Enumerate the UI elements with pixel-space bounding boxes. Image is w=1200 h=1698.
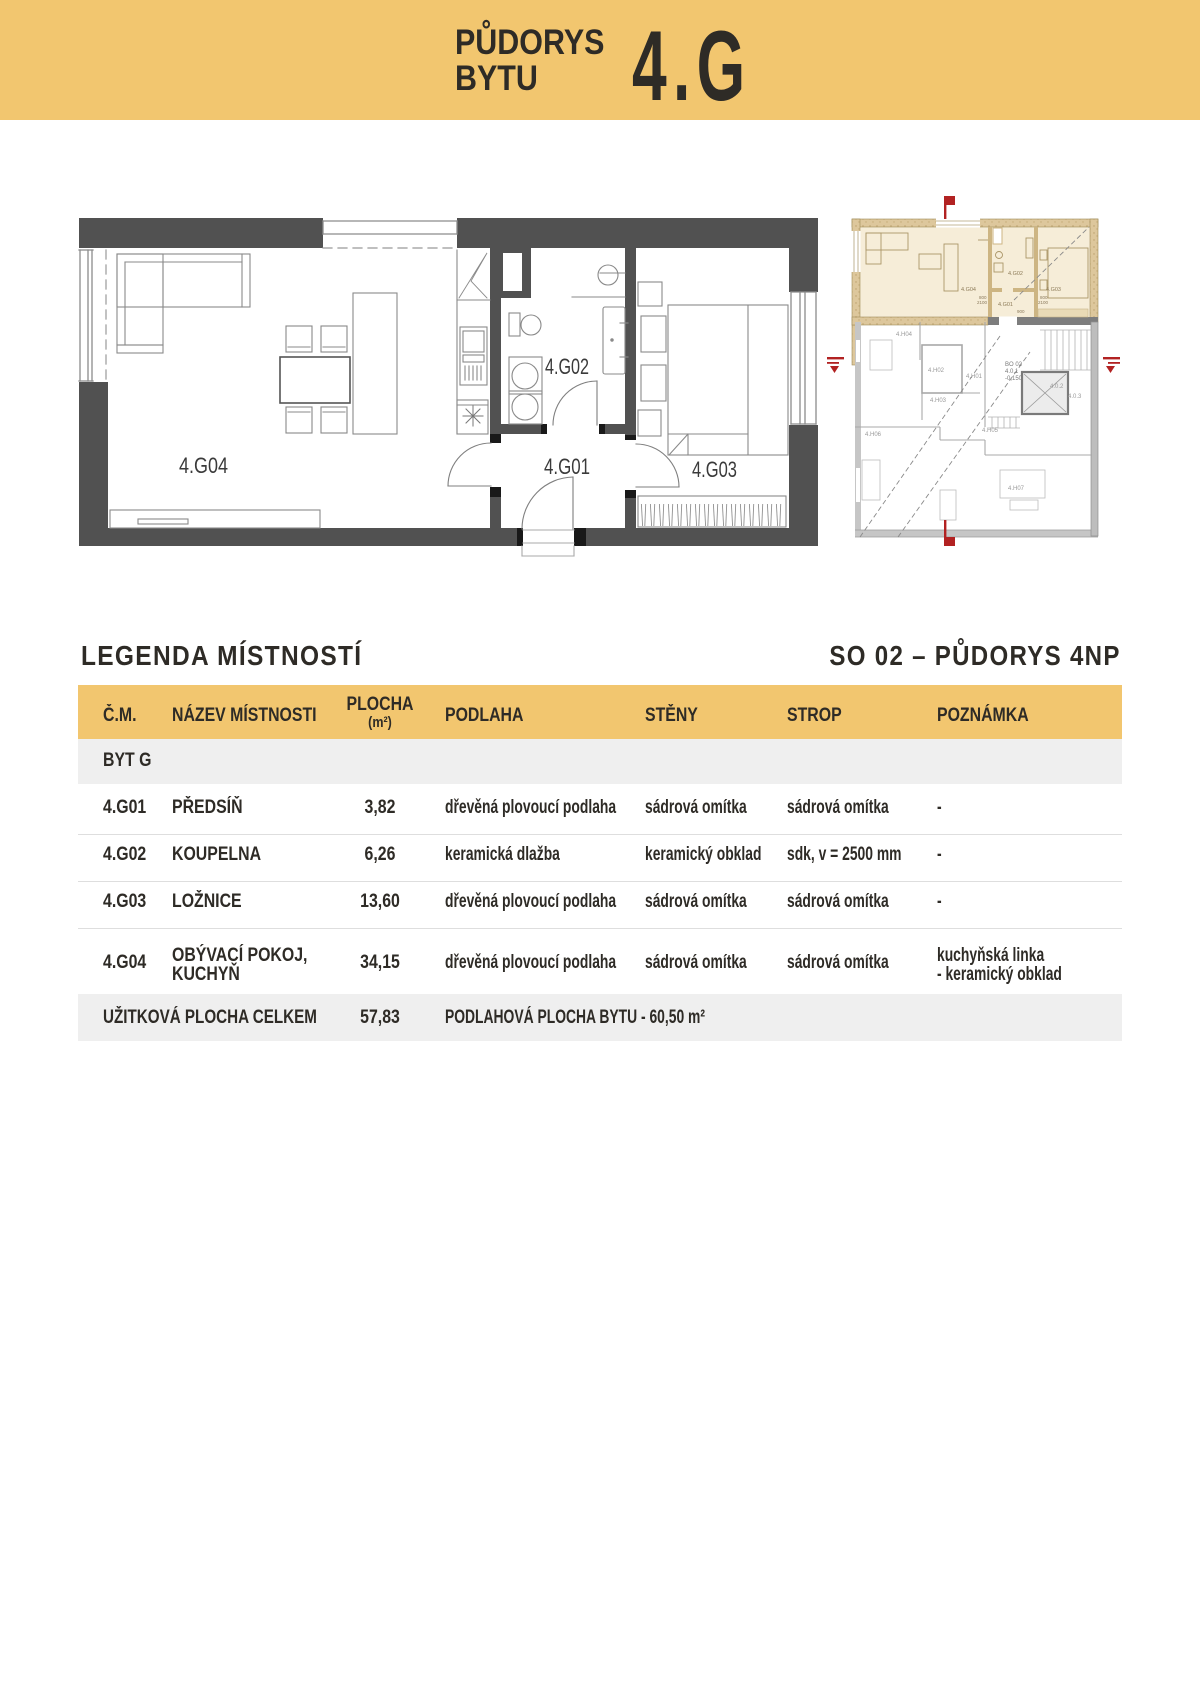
svg-text:4.H02: 4.H02 <box>928 368 945 374</box>
svg-text:4.G04: 4.G04 <box>961 287 976 293</box>
svg-text:4.H04: 4.H04 <box>896 332 913 338</box>
svg-text:2100: 2100 <box>1038 300 1049 305</box>
svg-text:4.G04: 4.G04 <box>179 453 228 478</box>
svg-text:2100: 2100 <box>977 300 988 305</box>
svg-text:4.H01: 4.H01 <box>966 374 983 380</box>
svg-text:-0,150: -0,150 <box>1005 376 1023 382</box>
svg-text:BO 02: BO 02 <box>1005 362 1023 368</box>
svg-text:4.G02: 4.G02 <box>545 354 589 379</box>
svg-text:4.G01: 4.G01 <box>544 454 590 479</box>
svg-text:4.G02: 4.G02 <box>1008 271 1023 277</box>
svg-text:4.G03: 4.G03 <box>1046 287 1061 293</box>
svg-text:4.H06: 4.H06 <box>865 432 882 438</box>
svg-text:4.0.1: 4.0.1 <box>1005 369 1019 375</box>
svg-text:4.H05: 4.H05 <box>982 428 999 434</box>
svg-text:4.0.3: 4.0.3 <box>1068 394 1082 400</box>
svg-text:4.H07: 4.H07 <box>1008 486 1025 492</box>
svg-text:4.H03: 4.H03 <box>930 398 947 404</box>
svg-text:4.G03: 4.G03 <box>692 457 737 482</box>
svg-text:900: 900 <box>1017 309 1025 314</box>
svg-text:4.0.2: 4.0.2 <box>1050 384 1064 390</box>
svg-text:4.G01: 4.G01 <box>998 302 1013 308</box>
